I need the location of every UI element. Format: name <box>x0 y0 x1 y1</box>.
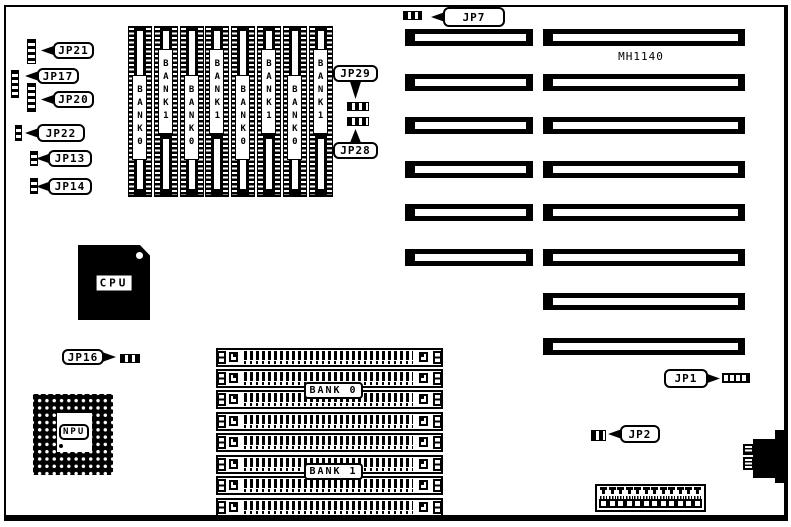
jp17-label: JP17 <box>43 70 74 83</box>
simm-bank1-label: BANK 1 <box>304 463 363 480</box>
simm-latch-icon <box>229 459 238 469</box>
dram-chip-8: BANK1 <box>309 26 333 197</box>
npu-socket: NPU <box>33 394 113 475</box>
dram-bank-label: BANK1 <box>158 49 173 134</box>
chip-body-slot <box>163 139 169 189</box>
power-pin-cap-icon <box>660 487 667 490</box>
simm-latch-icon <box>229 480 238 490</box>
simm-latch-icon <box>229 416 238 426</box>
simm-clip-icon <box>433 458 442 471</box>
board-model-label: MH1140 <box>605 50 677 63</box>
jp2-jumper-icon <box>591 430 606 441</box>
pin1-dot-icon <box>59 444 63 448</box>
power-pin-7 <box>651 486 658 510</box>
pin1-dot-icon <box>136 252 143 259</box>
simm-latch-icon <box>419 352 428 362</box>
simm-clip-icon <box>433 479 442 492</box>
jp17-callout: JP17 <box>37 68 79 84</box>
jp1-label: JP1 <box>675 372 698 385</box>
npu-label: NPU <box>59 424 89 440</box>
dram-bank-label-text: BANK1 <box>314 59 327 124</box>
npu-socket-center: NPU <box>57 413 92 452</box>
simm-clip-icon <box>217 393 226 406</box>
dram-chip-array: BANK0BANK1BANK0BANK1BANK0BANK1BANK0BANK1 <box>128 26 340 197</box>
power-pin-11 <box>685 486 692 510</box>
expansion-slot-right-4 <box>543 161 745 178</box>
expansion-slot-right-1 <box>543 29 745 46</box>
expansion-slot-left-6 <box>405 249 533 266</box>
power-pin-1 <box>600 486 607 510</box>
simm-pin-band <box>244 425 413 428</box>
jp20-jumper-icon <box>27 83 36 112</box>
dram-bank-label: BANK1 <box>313 49 328 134</box>
power-pin-cap-icon <box>643 487 650 490</box>
expansion-slot-left-3 <box>405 117 533 134</box>
dram-bank-label-text: BANK1 <box>262 59 275 124</box>
simm-pin-band <box>244 501 413 510</box>
simm-clip-icon <box>217 372 226 385</box>
jp22-jumper-icon <box>15 125 22 141</box>
jp16-jumper-icon <box>120 354 140 363</box>
keyboard-plug-icon <box>743 444 754 455</box>
jp22-callout: JP22 <box>37 124 85 142</box>
jp20-callout: JP20 <box>53 91 94 108</box>
dram-chip-4: BANK1 <box>205 26 229 197</box>
simm-latch-icon <box>229 352 238 362</box>
power-pin-4 <box>626 486 633 510</box>
jp29-label: JP29 <box>340 67 371 80</box>
power-pin-cap-icon <box>677 487 684 490</box>
chip-body-slot <box>318 139 324 189</box>
jp1-callout: JP1 <box>664 369 708 388</box>
simm-clip-icon <box>217 351 226 364</box>
simm-latch-icon <box>229 373 238 383</box>
jp14-label: JP14 <box>55 180 86 193</box>
jp22-label: JP22 <box>46 127 77 140</box>
dram-bank-label: BANK0 <box>132 75 147 160</box>
jp7-jumper-icon <box>403 11 422 20</box>
power-pin-12 <box>694 486 701 510</box>
expansion-slot-left-4 <box>405 161 533 178</box>
jp17-jumper-icon <box>11 70 19 98</box>
simm-socket-row-4 <box>216 412 443 431</box>
simm-bank0-label: BANK 0 <box>304 382 363 399</box>
expansion-slot-left-5 <box>405 204 533 221</box>
simm-latch-icon <box>229 394 238 404</box>
expansion-slot-left-2 <box>405 74 533 91</box>
simm-clip-icon <box>217 479 226 492</box>
jp7-callout: JP7 <box>443 7 505 27</box>
power-pin-8 <box>660 486 667 510</box>
cpu-label: CPU <box>97 275 132 290</box>
expansion-slot-right-3 <box>543 117 745 134</box>
power-pin-5 <box>634 486 641 510</box>
simm-clip-icon <box>217 501 226 514</box>
power-pin-cap-icon <box>634 487 641 490</box>
simm-clip-icon <box>217 458 226 471</box>
simm-latch-icon <box>419 480 428 490</box>
power-pin-socket-icon <box>693 499 702 508</box>
expansion-slot-left-1 <box>405 29 533 46</box>
simm-socket-row-1 <box>216 348 443 367</box>
simm-clip-icon <box>433 351 442 364</box>
simm-clip-icon <box>433 415 442 428</box>
power-pin-6 <box>643 486 650 510</box>
dram-bank-label-text: BANK1 <box>210 59 223 124</box>
expansion-slot-right-2 <box>543 74 745 91</box>
jp14-jumper-icon <box>30 178 38 194</box>
dram-chip-3: BANK0 <box>180 26 204 197</box>
expansion-slot-right-6 <box>543 249 745 266</box>
jp29-callout: JP29 <box>333 65 378 82</box>
jp16-label: JP16 <box>68 351 99 364</box>
jp28-label: JP28 <box>340 144 371 157</box>
dram-bank-label-text: BANK0 <box>133 85 146 150</box>
power-pin-cap-icon <box>651 487 658 490</box>
jp2-label: JP2 <box>629 428 652 441</box>
jp16-callout: JP16 <box>62 349 104 365</box>
motherboard-diagram: JP21 JP17 JP20 JP22 JP13 JP14 BANK0BANK1… <box>0 0 791 527</box>
simm-pin-band <box>244 436 413 445</box>
simm-pin-band <box>244 489 413 492</box>
simm-latch-icon <box>229 502 238 512</box>
dram-bank-label-text: BANK0 <box>288 85 301 150</box>
power-pin-2 <box>609 486 616 510</box>
dram-bank-label: BANK0 <box>287 75 302 160</box>
power-pin-cap-icon <box>600 487 607 490</box>
simm-latch-icon <box>419 394 428 404</box>
jp21-jumper-icon <box>27 39 36 64</box>
dram-bank-label: BANK0 <box>235 75 250 160</box>
dram-chip-2: BANK1 <box>154 26 178 197</box>
power-pin-cap-icon <box>609 487 616 490</box>
dram-bank-label-text: BANK1 <box>159 59 172 124</box>
jp21-callout: JP21 <box>53 42 94 59</box>
simm-clip-icon <box>433 372 442 385</box>
jp28-jumper-icon <box>347 117 369 126</box>
simm-pin-band <box>244 403 413 406</box>
dram-bank-label: BANK1 <box>261 49 276 134</box>
jp13-label: JP13 <box>55 152 86 165</box>
simm-pin-band <box>244 511 413 514</box>
simm-pin-band <box>244 446 413 449</box>
jp20-label: JP20 <box>58 93 89 106</box>
jp28-callout: JP28 <box>333 142 378 159</box>
keyboard-plug-icon <box>743 457 754 470</box>
simm-latch-icon <box>419 502 428 512</box>
simm-pin-band <box>244 351 413 360</box>
dram-chip-1: BANK0 <box>128 26 152 197</box>
jp29-jumper-icon <box>347 102 369 111</box>
cpu-chip: CPU <box>78 245 150 320</box>
simm-socket-row-8 <box>216 498 443 517</box>
keyboard-connector-bracket <box>775 430 788 483</box>
simm-socket-row-5 <box>216 433 443 452</box>
power-pin-cap-icon <box>694 487 701 490</box>
jp13-callout: JP13 <box>48 150 92 167</box>
jp1-jumper-icon <box>722 373 750 383</box>
power-connector <box>595 484 706 512</box>
dram-bank-label-text: BANK0 <box>185 85 198 150</box>
simm-latch-icon <box>419 373 428 383</box>
power-pin-9 <box>668 486 675 510</box>
jp2-callout: JP2 <box>620 425 660 443</box>
simm-latch-icon <box>419 459 428 469</box>
expansion-slot-right-5 <box>543 204 745 221</box>
expansion-slot-right-7 <box>543 293 745 310</box>
simm-latch-icon <box>229 437 238 447</box>
simm-pin-band <box>244 479 413 488</box>
power-pin-3 <box>617 486 624 510</box>
dram-bank-label: BANK0 <box>184 75 199 160</box>
jp7-label: JP7 <box>463 11 486 24</box>
dram-chip-7: BANK0 <box>283 26 307 197</box>
expansion-slot-right-8 <box>543 338 745 355</box>
jp14-callout: JP14 <box>48 178 92 195</box>
simm-latch-icon <box>419 437 428 447</box>
simm-clip-icon <box>217 415 226 428</box>
power-pin-cap-icon <box>685 487 692 490</box>
simm-latch-icon <box>419 416 428 426</box>
dram-chip-5: BANK0 <box>231 26 255 197</box>
simm-clip-icon <box>433 501 442 514</box>
simm-pin-band <box>244 372 413 381</box>
power-pin-10 <box>677 486 684 510</box>
dram-bank-label: BANK1 <box>209 49 224 134</box>
chip-body-slot <box>214 139 220 189</box>
power-pin-cap-icon <box>617 487 624 490</box>
simm-clip-icon <box>433 393 442 406</box>
dram-bank-label-text: BANK0 <box>236 85 249 150</box>
jp21-label: JP21 <box>58 44 89 57</box>
simm-clip-icon <box>217 436 226 449</box>
simm-clip-icon <box>433 436 442 449</box>
power-pin-cap-icon <box>668 487 675 490</box>
power-pin-cap-icon <box>626 487 633 490</box>
chip-body-slot <box>266 139 272 189</box>
dram-chip-6: BANK1 <box>257 26 281 197</box>
simm-pin-band <box>244 361 413 364</box>
simm-pin-band <box>244 415 413 424</box>
